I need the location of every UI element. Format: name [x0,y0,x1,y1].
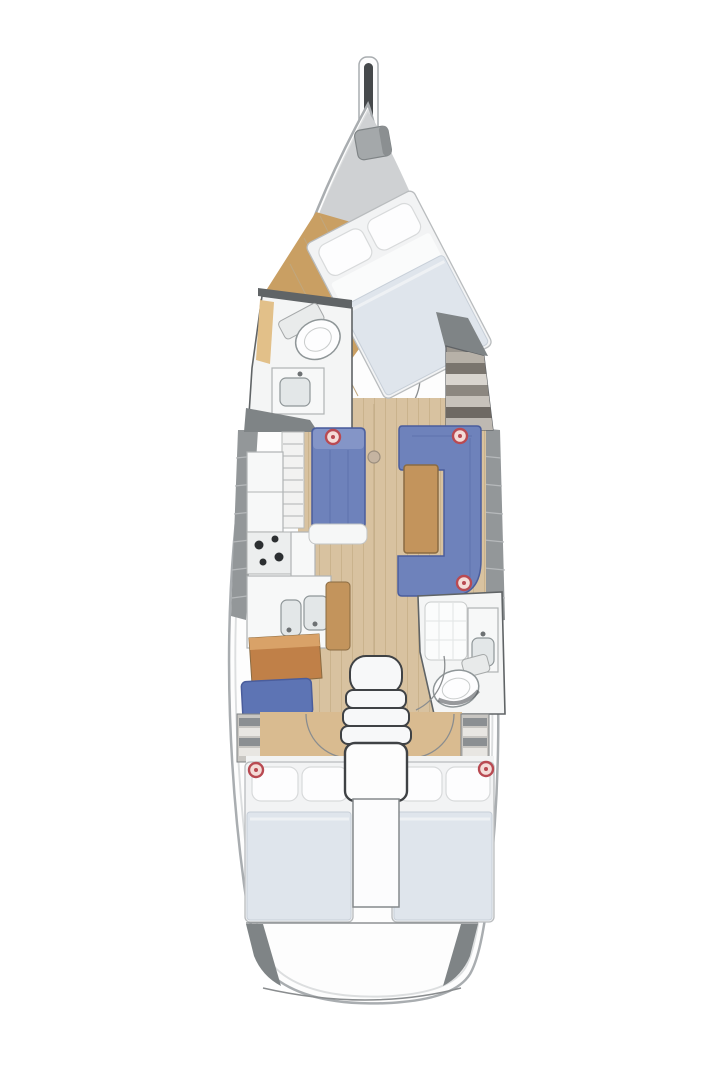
starboard-locker-shelves [461,714,489,762]
marker-sofa-aft [457,576,471,590]
galley-rack [282,432,304,528]
anchor-windlass [354,125,393,160]
salon-table [404,465,438,553]
marker-aft-port [249,763,263,777]
marker-salon-starboard [453,429,467,443]
marker-aft-starboard [479,762,493,776]
marker-salon-port [326,430,340,444]
galley-faucet-left [287,628,292,633]
galley-faucet-right [313,622,318,627]
step-2 [343,708,409,726]
port-settee-armrest [309,524,367,544]
chart-leaf [326,582,350,650]
step-3 [341,726,411,744]
starboard-blanket [394,812,492,920]
step-1 [346,690,406,708]
galley-stove [247,532,292,574]
aft-head [416,592,505,714]
port-pillow-right [302,767,348,801]
port-blanket [247,812,351,920]
nav-seat [241,678,313,718]
floor-plan-canvas [0,0,720,1080]
mast-post [368,451,380,463]
wardrobe-stripes [444,352,496,430]
engine-column [353,799,399,907]
aft-cabin-port-berth [245,756,353,922]
port-settee [309,428,367,544]
engine-box [345,743,407,801]
forward-head [244,288,352,432]
companionway-hood [350,656,402,694]
forward-sink-basin [280,378,310,406]
forward-sink [272,368,324,414]
aft-shower [425,602,467,660]
yacht-floor-plan [0,0,720,1080]
aft-faucet [481,632,486,637]
forward-faucet [298,372,303,377]
wardrobe-shelves [444,346,496,430]
